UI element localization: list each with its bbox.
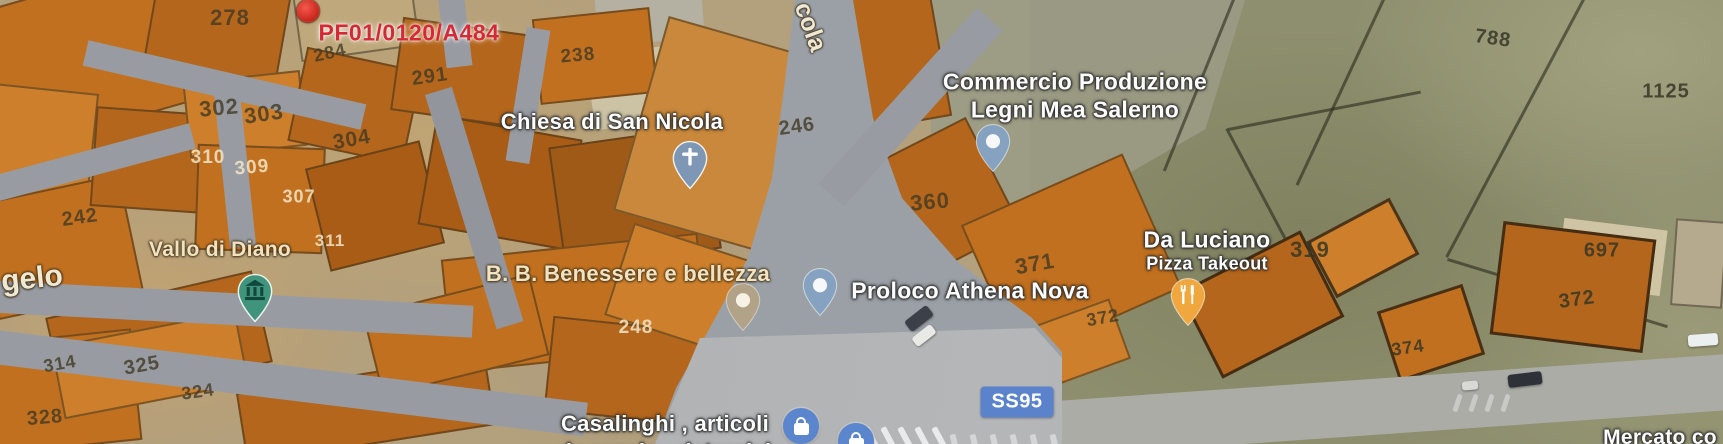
parcel-number: 319 bbox=[1290, 237, 1330, 263]
selected-parcel-label: PF01/0120/A484 bbox=[319, 20, 500, 47]
business-dot-blue-pin-icon[interactable] bbox=[974, 123, 1012, 173]
business-dot-tan-pin-icon[interactable] bbox=[724, 282, 762, 332]
poi-label-mercato[interactable]: Mercato co bbox=[1603, 426, 1717, 444]
car bbox=[1688, 333, 1719, 347]
poi-label-bb-benessere-e-bellezza[interactable]: B. B. Benessere e bellezza bbox=[486, 261, 770, 287]
parcel-number: 303 bbox=[243, 98, 286, 129]
parcel-number: 311 bbox=[315, 231, 345, 251]
bag-glyph bbox=[794, 423, 809, 435]
restaurant-pin-icon[interactable] bbox=[1169, 277, 1207, 327]
museum-pin-icon[interactable] bbox=[236, 273, 274, 323]
poi-label-casalinghi-articoli[interactable]: da regalo , detersivi bbox=[559, 439, 772, 444]
selected-parcel-marker[interactable] bbox=[297, 0, 319, 22]
street-label: gelo bbox=[0, 259, 64, 299]
parcel-number: 248 bbox=[619, 317, 654, 339]
poi-label-da-luciano[interactable]: Pizza Takeout bbox=[1146, 254, 1268, 275]
building bbox=[1490, 221, 1657, 353]
business-dot-blue-pin-icon[interactable] bbox=[801, 267, 839, 317]
parcel-number: 697 bbox=[1584, 240, 1620, 263]
car bbox=[1462, 380, 1479, 390]
parcel-number: 788 bbox=[1473, 25, 1512, 53]
poi-label-commercio-produzione-legni-mea-salerno[interactable]: Commercio Produzione bbox=[943, 69, 1207, 96]
building bbox=[1670, 218, 1723, 308]
shopping-bag-icon[interactable] bbox=[783, 408, 819, 444]
parcel-number: 1125 bbox=[1642, 81, 1689, 104]
parcel-number: 328 bbox=[26, 405, 64, 431]
poi-label-da-luciano[interactable]: Da Luciano bbox=[1144, 227, 1271, 254]
poi-label-casalinghi-articoli[interactable]: Casalinghi , articoli bbox=[561, 411, 769, 437]
poi-label-vallo-di-diano[interactable]: Vallo di Diano bbox=[149, 238, 291, 262]
parcel-number: 307 bbox=[282, 187, 315, 208]
parcel-number: 360 bbox=[909, 187, 951, 216]
parcel-number: 310 bbox=[191, 147, 226, 169]
poi-label-proloco-athena-nova[interactable]: Proloco Athena Nova bbox=[851, 278, 1088, 305]
parcel-number: 238 bbox=[560, 44, 596, 69]
poi-label-chiesa-di-san-nicola[interactable]: Chiesa di San Nicola bbox=[501, 109, 723, 135]
poi-label-commercio-produzione-legni-mea-salerno[interactable]: Legni Mea Salerno bbox=[971, 97, 1179, 124]
parcel-number: 309 bbox=[234, 156, 270, 181]
parcel-number: 278 bbox=[210, 5, 250, 31]
church-pin-icon[interactable] bbox=[671, 140, 709, 190]
road-badge: SS95 bbox=[981, 387, 1054, 418]
map-canvas[interactable]: colagelo27830230331030930730431128429123… bbox=[0, 0, 1723, 444]
bag-glyph bbox=[849, 438, 864, 444]
parcel-number: 302 bbox=[198, 93, 240, 122]
